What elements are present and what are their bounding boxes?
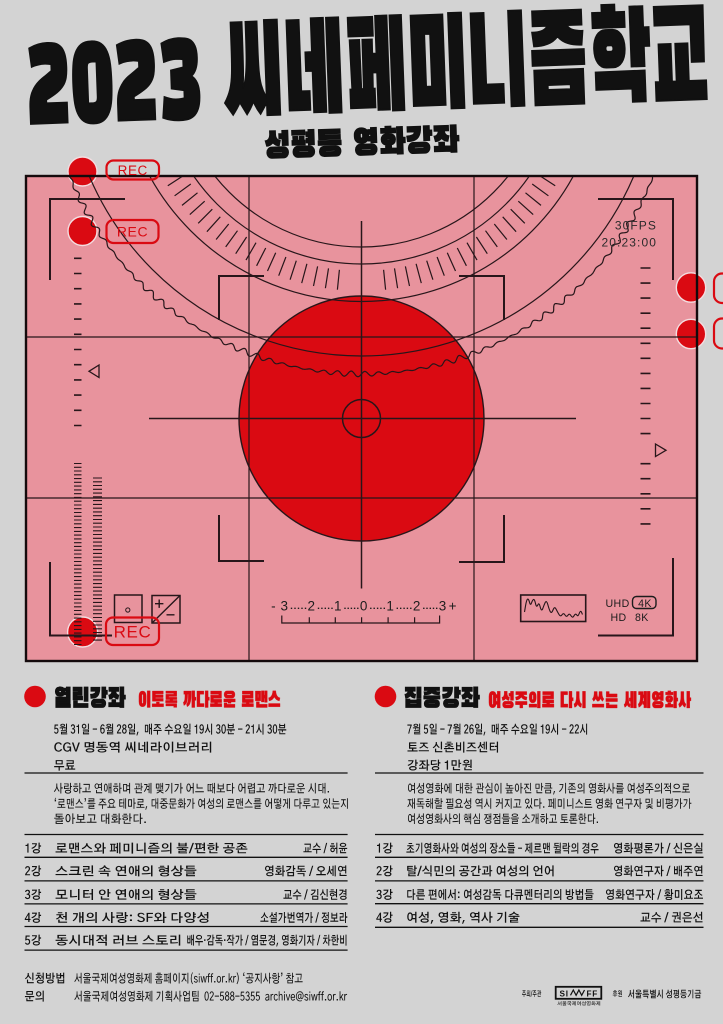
svg-text:FF: FF: [587, 989, 599, 998]
svg-text:HD: HD: [611, 612, 627, 624]
svg-text:UHD: UHD: [606, 598, 630, 610]
svg-text:REC: REC: [114, 622, 152, 641]
svg-text:30FPS: 30FPS: [615, 219, 657, 233]
svg-text:SI: SI: [560, 989, 569, 998]
svg-text:REC: REC: [117, 224, 148, 240]
svg-text:20:23:00: 20:23:00: [601, 235, 657, 249]
svg-text:8K: 8K: [635, 612, 649, 624]
svg-text:REC: REC: [118, 163, 148, 178]
